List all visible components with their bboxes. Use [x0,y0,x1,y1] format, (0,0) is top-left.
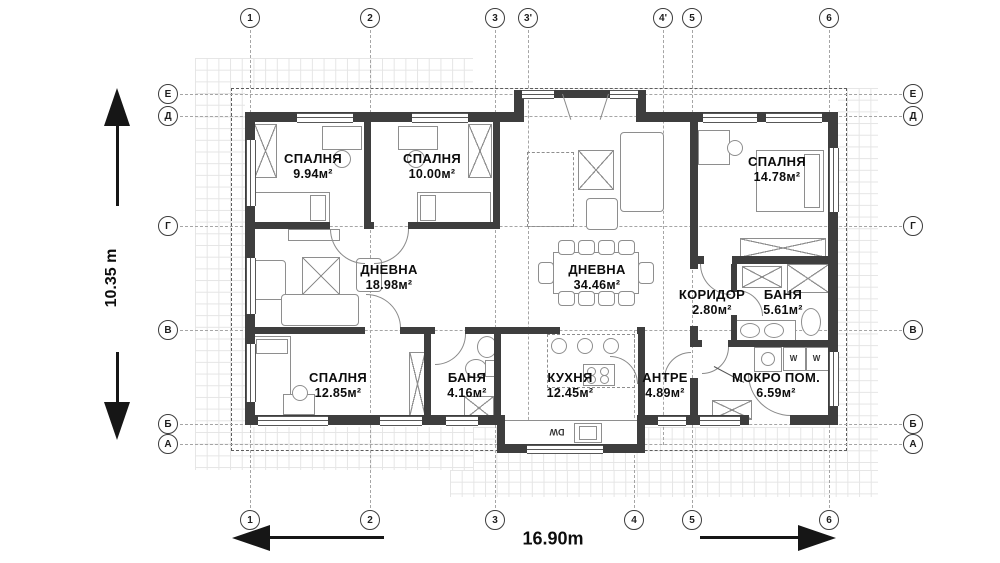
washer-label: W [806,347,827,369]
chair [292,385,308,401]
room-area: 10.00м² [403,167,461,183]
exterior-wall [790,415,838,425]
room-name: БАНЯ [448,370,486,385]
dim-shaft [116,124,119,206]
axis-line-5 [692,30,693,508]
room-area: 9.94м² [284,167,342,183]
window [610,90,638,99]
fireplace [302,257,340,295]
background-grid [450,470,878,497]
axis-bubble-top-3: 3 [485,8,505,28]
window [258,416,328,426]
window [700,416,740,426]
dining-chair [538,262,554,284]
room-area: 4.16м² [447,386,487,402]
axis-bubble-right-E: Е [903,84,923,104]
dining-chair [638,262,654,284]
interior-wall [690,340,702,347]
floor-plan-drawing: СПАЛНЯ 9.94м² СПАЛНЯ 10.00м² СПАЛНЯ 14.7… [0,0,1000,563]
dim-height-label: 10.35 m [103,249,121,308]
window [412,113,468,123]
bed-pillow [256,339,288,354]
room-label-kitchen: КУХНЯ 12.45м² [547,370,594,402]
axis-bubble-bottom-2: 2 [360,510,380,530]
window [527,445,603,454]
window [246,140,256,206]
interior-wall [465,327,560,334]
armchair [586,198,618,230]
axis-bubble-right-D: Д [903,106,923,126]
room-label-bedroom3: СПАЛНЯ 14.78м² [748,154,806,186]
room-name: ДНЕВНА [360,262,417,277]
window [297,113,353,123]
room-name: КОРИДОР [679,287,745,302]
window [829,352,839,406]
bar-stool [551,338,567,354]
room-area: 5.61м² [763,303,803,319]
sink [764,323,784,338]
room-label-wetroom: МОКРО ПОМ. 6.59м² [732,370,820,402]
axis-bubble-top-4p: 4' [653,8,673,28]
dim-arrowhead-left [232,525,270,551]
utility-sink-bowl [761,352,775,366]
exterior-wall [245,112,517,122]
room-label-bedroom4: СПАЛНЯ 12.85м² [309,370,367,402]
dim-arrowhead-up [104,88,130,126]
axis-bubble-top-3p: 3' [518,8,538,28]
room-name: СПАЛНЯ [748,154,806,169]
dim-shaft [268,536,384,539]
axis-bubble-left-E: Е [158,84,178,104]
desk [698,130,730,165]
window [446,416,478,426]
sofa [281,294,359,326]
interior-wall [408,222,500,229]
axis-bubble-top-6: 6 [819,8,839,28]
interior-wall [637,327,645,334]
bar-stool [577,338,593,354]
window [246,258,256,314]
axis-bubble-left-B: Б [158,414,178,434]
room-area: 14.78м² [748,170,806,186]
axis-bubble-bottom-5: 5 [682,510,702,530]
room-area: 12.45м² [547,386,594,402]
axis-bubble-left-V: В [158,320,178,340]
interior-wall [690,378,698,423]
desk [322,126,362,150]
room-label-corridor: КОРИДОР 2.80м² [679,287,745,319]
dining-chair [618,240,635,255]
room-name: СПАЛНЯ [403,151,461,166]
axis-bubble-bottom-4: 4 [624,510,644,530]
desk [398,126,438,150]
dim-arrowhead-down [104,402,130,440]
interior-wall [364,122,371,222]
interior-wall [732,256,838,264]
chair [727,140,743,156]
window [246,344,256,402]
dim-shaft [700,536,800,539]
axis-bubble-top-1: 1 [240,8,260,28]
dining-chair [598,240,615,255]
room-name: СПАЛНЯ [309,370,367,385]
rug [527,152,574,227]
bed-pillow [804,154,820,208]
room-label-bath2: БАНЯ 5.61м² [763,287,803,319]
dining-chair [578,240,595,255]
interior-wall [690,122,698,269]
interior-wall [400,327,435,334]
room-name: БАНЯ [764,287,802,302]
interior-wall [245,222,330,229]
closet [742,266,782,288]
room-area: 34.46м² [568,278,625,294]
room-name: КУХНЯ [547,370,592,385]
armchair [252,260,286,300]
axis-bubble-right-A: А [903,434,923,454]
room-area: 4.89м² [642,386,688,402]
room-area: 2.80м² [679,303,745,319]
room-label-entry: АНТРЕ 4.89м² [642,370,688,402]
toilet [801,308,821,336]
kitchen-sink-bowl [579,426,597,440]
axis-bubble-bottom-3: 3 [485,510,505,530]
wardrobe [254,124,277,178]
dishwasher-label: DW [544,423,570,441]
room-label-living1: ДНЕВНА 18.98м² [360,262,417,294]
room-name: МОКРО ПОМ. [732,370,820,385]
axis-bubble-left-A: А [158,434,178,454]
sink [740,323,760,338]
interior-wall [494,334,501,415]
interior-wall [424,334,431,415]
room-area: 12.85м² [309,386,367,402]
room-area: 6.59м² [732,386,820,402]
window [829,148,839,212]
room-area: 18.98м² [360,278,417,294]
room-name: ДНЕВНА [568,262,625,277]
axis-bubble-left-D: Д [158,106,178,126]
sofa [620,132,664,212]
interior-wall [493,122,500,229]
interior-wall [364,222,374,229]
interior-wall [245,327,365,334]
room-name: АНТРЕ [642,370,688,385]
wardrobe [468,124,492,178]
window [658,416,686,426]
dim-shaft [116,352,119,404]
axis-bubble-left-G: Г [158,216,178,236]
room-label-bedroom1: СПАЛНЯ 9.94м² [284,151,342,183]
room-label-bedroom2: СПАЛНЯ 10.00м² [403,151,461,183]
dim-arrowhead-right [798,525,836,551]
interior-wall [690,256,704,264]
window [380,416,422,426]
axis-bubble-top-5: 5 [682,8,702,28]
wardrobe [740,238,826,258]
bar-stool [603,338,619,354]
axis-line-3 [495,30,496,508]
fireplace [578,150,614,190]
axis-bubble-right-B: Б [903,414,923,434]
axis-bubble-top-2: 2 [360,8,380,28]
bed-pillow [310,195,326,221]
stove-burner [600,375,609,384]
window [766,113,822,123]
room-label-living2: ДНЕВНА 34.46м² [568,262,625,294]
washer-label: W [783,347,804,369]
dim-width-label: 16.90m [522,529,583,550]
window [703,113,757,123]
axis-bubble-right-G: Г [903,216,923,236]
room-name: СПАЛНЯ [284,151,342,166]
dining-chair [558,240,575,255]
room-label-bath1: БАНЯ 4.16м² [447,370,487,402]
interior-wall [728,340,838,347]
window [522,90,554,99]
axis-bubble-right-V: В [903,320,923,340]
bed-pillow [420,195,436,221]
